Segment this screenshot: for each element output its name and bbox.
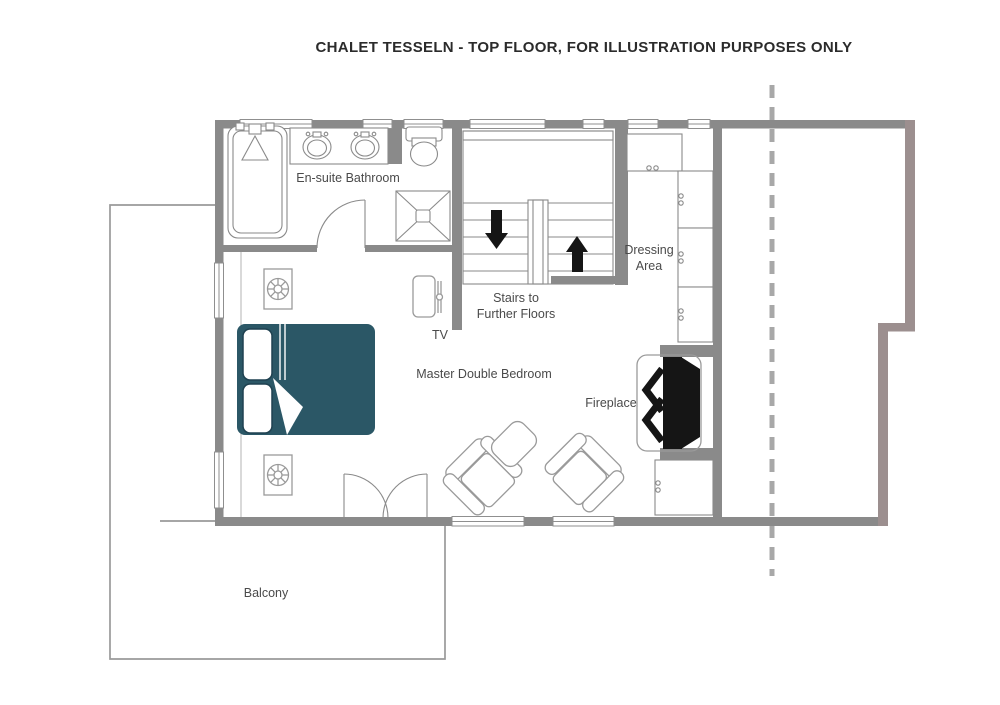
closet-right-1 — [678, 171, 713, 228]
sink-right — [351, 132, 379, 159]
bed-pillow-top — [243, 329, 272, 380]
stairwell — [463, 131, 613, 284]
page-title: CHALET TESSELN - TOP FLOOR, FOR ILLUSTRA… — [316, 39, 853, 56]
wall-top — [215, 120, 910, 129]
shower-drain — [416, 210, 430, 222]
wall-right-lower — [878, 331, 888, 526]
window-bottom-1 — [452, 517, 524, 527]
window-left-1 — [215, 263, 224, 318]
double-bed — [237, 324, 375, 435]
shower-tray — [396, 191, 450, 241]
tv-unit — [413, 276, 443, 317]
window-top-5 — [583, 120, 604, 129]
window-left-2 — [215, 452, 224, 508]
nightstand-lamp-top — [264, 269, 292, 309]
nightstand-lamp-bottom — [264, 455, 292, 495]
fireplace — [637, 355, 701, 451]
stair-divider-outer — [528, 200, 548, 284]
fireplace-back-panel — [681, 357, 700, 449]
toilet — [406, 127, 442, 166]
vanity-unit — [290, 128, 388, 164]
bed-pillow-bottom — [243, 384, 272, 433]
wall-fireplace-bottom — [660, 448, 722, 460]
wall-stairwell-stub — [551, 276, 628, 284]
window-top-6 — [628, 120, 658, 129]
label-stairs-1: Stairs to — [493, 291, 539, 305]
label-fireplace: Fireplace — [585, 396, 636, 410]
closet-below-fireplace — [655, 460, 713, 515]
sink-right-tap — [361, 132, 369, 137]
closet-right-3 — [678, 287, 713, 342]
label-balcony: Balcony — [244, 586, 289, 600]
wall-bathroom-south-left — [215, 245, 317, 252]
sink-left — [303, 132, 331, 159]
tv-mount — [437, 294, 443, 300]
label-dressing-1: Dressing — [624, 243, 673, 257]
stairwell-top-edge — [463, 131, 613, 140]
label-dressing-2: Area — [636, 259, 662, 273]
sink-left-tap — [313, 132, 321, 137]
armchair-right — [541, 428, 629, 516]
fireplace-chevron-bottom — [646, 399, 662, 441]
tv-screen — [413, 276, 435, 317]
wall-bathroom-south-right — [365, 245, 460, 252]
wall-right-upper — [905, 120, 915, 331]
window-top-4 — [470, 120, 545, 129]
closet-right-2 — [678, 228, 713, 287]
window-top-2 — [363, 120, 392, 129]
french-door-right-swing — [383, 474, 427, 518]
toilet-bowl — [411, 142, 438, 166]
wall-right-step — [878, 323, 915, 332]
arrow-down-icon — [485, 210, 508, 249]
closet-top — [627, 134, 682, 171]
floorplan-page: CHALET TESSELN - TOP FLOOR, FOR ILLUSTRA… — [0, 0, 1000, 705]
bath-tap-left — [236, 123, 244, 130]
label-stairs-2: Further Floors — [477, 307, 556, 321]
wall-stairwell-left — [452, 128, 462, 330]
bathroom-door — [317, 200, 365, 248]
shower-head — [249, 124, 261, 134]
floorplan-drawing: CHALET TESSELN - TOP FLOOR, FOR ILLUSTRA… — [0, 0, 1000, 705]
bathtub — [228, 123, 287, 238]
fireplace-body — [663, 357, 682, 449]
label-bedroom: Master Double Bedroom — [416, 367, 551, 381]
bath-tap-right — [266, 123, 274, 130]
wall-stairwell-right — [615, 128, 628, 285]
window-bottom-2 — [553, 517, 614, 527]
french-door-left-swing — [344, 474, 388, 518]
label-tv: TV — [432, 328, 449, 342]
wall-bottom — [215, 517, 888, 526]
bathroom-door-swing — [317, 200, 365, 248]
balcony-french-doors — [344, 474, 427, 518]
walls-accent — [878, 120, 915, 526]
label-bathroom: En-suite Bathroom — [296, 171, 400, 185]
window-top-7 — [688, 120, 710, 129]
